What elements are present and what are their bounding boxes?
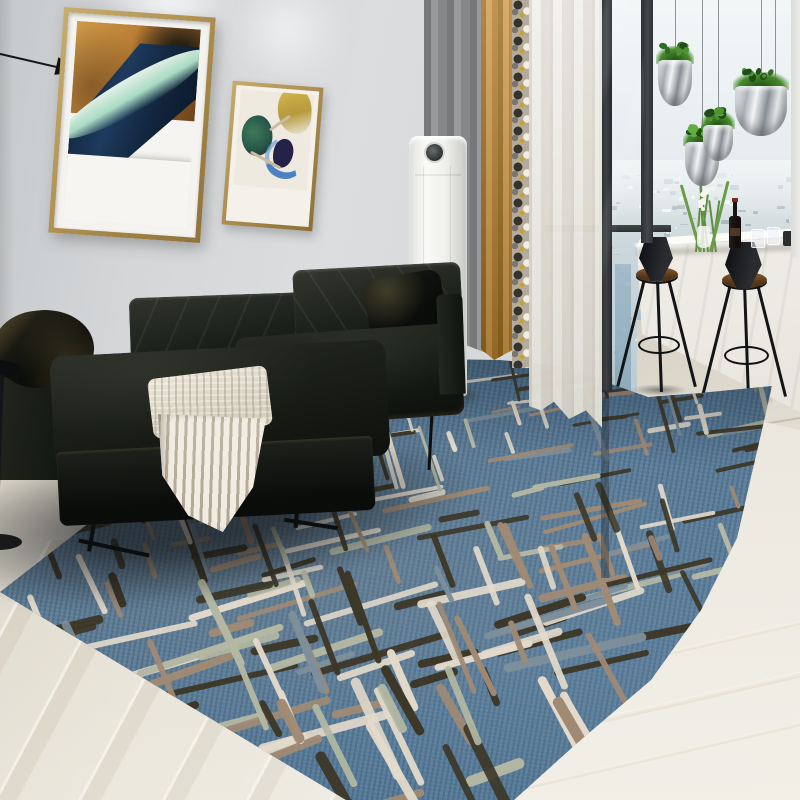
- flower-petal: [691, 195, 695, 199]
- flower-vase: [697, 226, 710, 248]
- spotlight-glow: [226, 0, 346, 78]
- door-frame-shadow: [601, 390, 609, 578]
- curtain-sheer-panel: [529, 0, 602, 432]
- opening-jamb: [791, 0, 800, 258]
- artwork-gold-blob: [276, 89, 313, 135]
- air-purifier-vent-icon: [426, 144, 443, 161]
- flower-petal: [700, 192, 705, 197]
- drinking-glass: [767, 227, 780, 245]
- wine-bottle-label: [730, 228, 740, 236]
- air-purifier-groove: [415, 174, 461, 176]
- artwork-small-frame: [221, 81, 323, 232]
- city-speckle: [680, 224, 689, 226]
- curtain-mustard-panel: [481, 0, 514, 360]
- drinking-glass: [751, 229, 765, 248]
- artwork-large-canvas: [63, 21, 201, 228]
- sofa-armrest: [436, 294, 465, 395]
- stool-footrest-ring: [724, 346, 769, 365]
- wine-bottle-neck: [733, 200, 737, 218]
- artwork-white-field: [63, 154, 191, 228]
- artwork-large-frame: [48, 7, 215, 243]
- city-speckle: [675, 227, 677, 229]
- wine-bottle-cap: [732, 198, 738, 202]
- flower-petal: [711, 187, 715, 191]
- city-speckle: [745, 224, 751, 226]
- door-frame-bar: [641, 0, 653, 243]
- stool-footrest-ring: [638, 336, 680, 354]
- living-room-scene: [0, 0, 800, 800]
- artwork-small-canvas: [234, 89, 314, 190]
